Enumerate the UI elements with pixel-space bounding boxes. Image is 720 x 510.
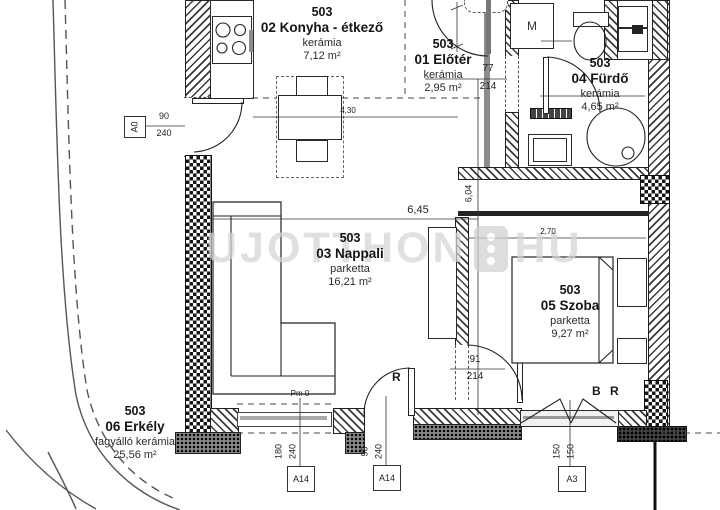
bath-door-opening [505, 56, 519, 112]
dim-living-width: 6,45 [398, 204, 438, 216]
dim-balc-door-w: 90 [360, 435, 371, 469]
nightstand-bottom [617, 338, 647, 364]
wall-right-block [640, 175, 670, 204]
shaft-wall-left [604, 0, 618, 60]
room-material: parketta [280, 263, 420, 276]
dim-window-h: 150 [566, 435, 577, 469]
balcony-door-leaf [408, 368, 415, 416]
dim-kitchen-width: 4,30 [330, 106, 366, 115]
room-name: 04 Fürdő [540, 71, 660, 87]
room-label-szoba: 503 05 Szoba parketta 9,27 m² [505, 283, 635, 342]
washing-machine: M [510, 3, 554, 49]
toilet-tank [573, 12, 609, 27]
room-material: fagyálló kerámia [55, 436, 215, 449]
dim-entry-door-w: 90 [147, 111, 181, 121]
wall-hall-bath-bottom [505, 112, 519, 170]
marker-window: A3 [558, 466, 586, 492]
bathtub [587, 108, 645, 166]
room-unit: 503 [505, 283, 635, 298]
watermark-logo [474, 226, 508, 272]
room-label-nappali: 503 03 Nappali parketta 16,21 m² [280, 231, 420, 290]
dim-balc-door-h: 240 [374, 435, 385, 469]
room-name: 05 Szoba [505, 298, 635, 314]
toilet [574, 22, 606, 60]
dim-bed-door-w: 91 [455, 354, 495, 365]
dim-entry-door-h: 240 [145, 128, 183, 138]
entry-door-leaf [192, 98, 244, 104]
marker-balcony-door: A14 [373, 465, 401, 491]
wall-bottom-mid-left [333, 408, 365, 434]
room-unit: 503 [383, 37, 503, 52]
room-name: 02 Konyha - étkező [232, 20, 412, 36]
shaft-vent [632, 25, 643, 34]
dim-window-w: 150 [552, 435, 563, 469]
wall-right-corner [644, 380, 668, 430]
room-name: 03 Nappali [280, 246, 420, 262]
room-unit: 503 [232, 5, 412, 20]
dim-bedroom-width: 2,70 [530, 227, 566, 236]
room-area: 9,27 m² [505, 328, 635, 341]
wall-bath-bottom [458, 167, 652, 180]
bedroom-door-leaf [517, 357, 523, 403]
room-material: parketta [505, 315, 635, 328]
shaft-wall-right [652, 0, 668, 60]
wall-left-top [185, 0, 212, 99]
room-name: 06 Erkély [55, 419, 215, 435]
dining-table [278, 95, 342, 140]
marker-sliding-label: A14 [293, 474, 309, 484]
sliding-door-glazing [240, 416, 327, 420]
floor-plan: M [0, 0, 720, 510]
wall-left [185, 155, 212, 434]
room-area: 16,21 m² [280, 276, 420, 289]
marker-entry-label: A0 [130, 121, 140, 132]
room-unit: 503 [540, 56, 660, 71]
balcony-slab-right [617, 426, 687, 442]
br-label: B R [592, 384, 622, 398]
dim-bath-door-h: 214 [470, 81, 506, 92]
balcony-slab-mid [413, 424, 522, 440]
room-label-furdo: 503 04 Fürdő kerámia 4,65 m² [540, 56, 660, 115]
marker-entry-door: A0 [124, 116, 146, 138]
bath-sink-basin [533, 138, 567, 162]
door-r-label: R [392, 370, 401, 384]
room-unit: 503 [280, 231, 420, 246]
bathtub-drain [622, 147, 634, 159]
marker-balcony-label: A14 [379, 473, 395, 483]
room-label-erkely: 503 06 Erkély fagyálló kerámia 25,56 m² [55, 404, 215, 463]
marker-sliding-door: A14 [287, 466, 315, 492]
watermark-logo-dot [487, 245, 495, 253]
room-area: 25,56 m² [55, 449, 215, 462]
wall-bedroom-top [458, 211, 648, 216]
dining-chair-bottom [296, 140, 328, 162]
watermark-logo-dot [487, 233, 495, 241]
pm-label: Pm 0 [282, 389, 318, 398]
washing-machine-label: M [527, 19, 537, 33]
dim-bed-door-h: 214 [455, 371, 495, 382]
dim-living-depth: 6,04 [464, 177, 475, 211]
bedroom-window-glazing [523, 416, 614, 419]
dim-slide-w: 180 [274, 435, 285, 469]
entry-door-opening [184, 97, 211, 157]
room-material: kerámia [540, 88, 660, 101]
balcony-door-swing [364, 368, 410, 414]
marker-window-label: A3 [566, 474, 577, 484]
watermark-logo-dot [487, 257, 495, 265]
dim-slide-h: 240 [288, 435, 299, 469]
room-area: 4,65 m² [540, 101, 660, 114]
room-unit: 503 [55, 404, 215, 419]
dim-bath-door-w: 77 [470, 63, 506, 74]
